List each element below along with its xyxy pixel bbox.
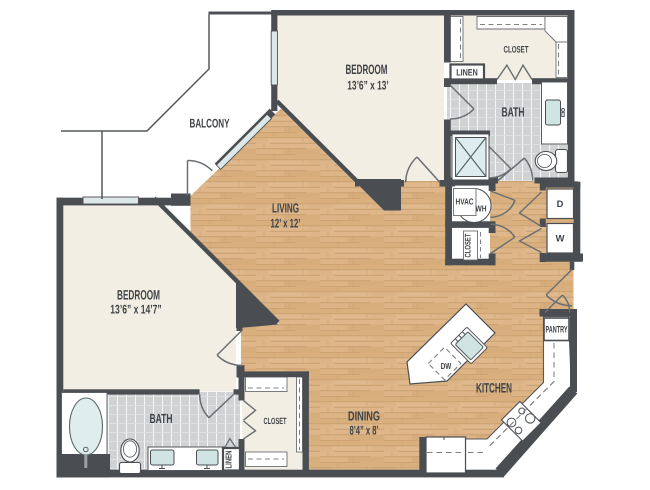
- svg-text:13’6” x 13’: 13’6” x 13’: [347, 79, 389, 93]
- svg-text:CLOSET: CLOSET: [464, 234, 473, 258]
- svg-text:D: D: [557, 198, 564, 209]
- svg-text:DINING: DINING: [348, 409, 380, 424]
- svg-text:12’ x 12’: 12’ x 12’: [271, 217, 301, 231]
- svg-text:KITCHEN: KITCHEN: [476, 381, 512, 396]
- svg-text:CLOSET: CLOSET: [504, 44, 529, 55]
- svg-text:HVAC: HVAC: [456, 197, 474, 207]
- svg-text:LINEN: LINEN: [456, 68, 478, 78]
- svg-text:W: W: [556, 233, 565, 244]
- svg-text:13’6” x 14’7”: 13’6” x 14’7”: [110, 303, 161, 317]
- svg-text:CLOSET: CLOSET: [264, 416, 287, 426]
- svg-text:PANTRY: PANTRY: [546, 324, 568, 335]
- svg-text:LINEN: LINEN: [224, 451, 234, 469]
- svg-text:DW: DW: [441, 361, 452, 371]
- svg-text:8’4” x 8’: 8’4” x 8’: [350, 424, 379, 438]
- svg-text:BEDROOM: BEDROOM: [346, 62, 388, 77]
- svg-text:BEDROOM: BEDROOM: [117, 288, 160, 303]
- svg-text:LIVING: LIVING: [272, 201, 299, 216]
- svg-text:BALCONY: BALCONY: [190, 117, 230, 131]
- svg-text:BATH: BATH: [502, 105, 525, 120]
- svg-text:WH: WH: [476, 204, 487, 214]
- svg-text:BATH: BATH: [150, 411, 173, 426]
